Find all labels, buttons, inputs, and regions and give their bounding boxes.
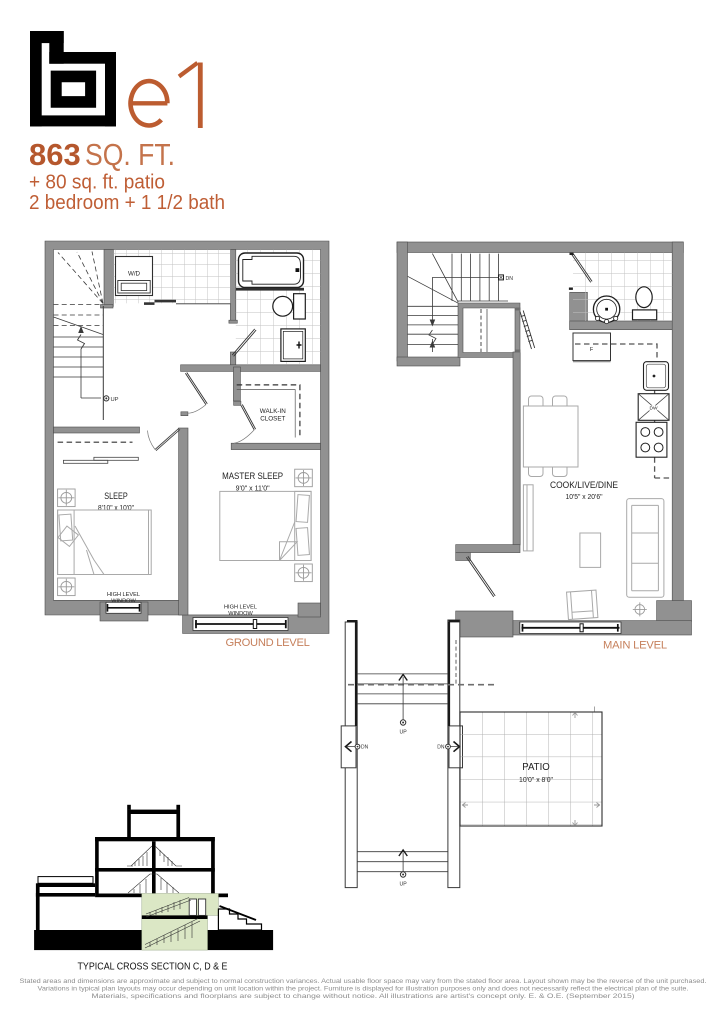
svg-text:10'0" x 8'0": 10'0" x 8'0": [519, 775, 553, 784]
svg-text:MAIN LEVEL: MAIN LEVEL: [603, 639, 667, 651]
svg-text:PATIO: PATIO: [522, 762, 550, 773]
svg-text:HIGH LEVEL: HIGH LEVEL: [107, 592, 140, 598]
svg-text:MASTER SLEEP: MASTER SLEEP: [222, 471, 283, 481]
svg-text:Materials, specifications and: Materials, specifications and floorplans…: [92, 993, 635, 1000]
svg-text:DN: DN: [361, 745, 369, 751]
svg-text:COOK/LIVE/DINE: COOK/LIVE/DINE: [550, 480, 618, 490]
svg-text:DN: DN: [437, 745, 445, 751]
svg-text:UP: UP: [399, 730, 407, 736]
svg-text:WALK-IN: WALK-IN: [260, 408, 286, 415]
svg-text:UP: UP: [111, 397, 119, 403]
svg-text:SLEEP: SLEEP: [104, 491, 128, 501]
svg-text:WINDOW: WINDOW: [228, 611, 253, 617]
svg-text:2 bedroom + 1 1/2 bath: 2 bedroom + 1 1/2 bath: [29, 192, 225, 214]
svg-text:UP: UP: [399, 882, 407, 888]
svg-text:Variations in typical plan lay: Variations in typical plan layouts may o…: [38, 986, 689, 993]
svg-text:Stated areas and dimensions ar: Stated areas and dimensions are approxim…: [20, 978, 707, 985]
svg-text:W/D: W/D: [128, 271, 141, 278]
svg-text:DN: DN: [506, 276, 514, 282]
svg-text:+ 80 sq. ft. patio: + 80 sq. ft. patio: [29, 172, 165, 194]
svg-text:CLOSET: CLOSET: [260, 415, 285, 422]
svg-text:SQ. FT.: SQ. FT.: [85, 137, 175, 172]
svg-text:8'10" x 10'0": 8'10" x 10'0": [98, 503, 134, 512]
svg-text:TYPICAL CROSS SECTION C, D & E: TYPICAL CROSS SECTION C, D & E: [78, 962, 228, 973]
svg-text:GROUND LEVEL: GROUND LEVEL: [225, 637, 309, 649]
svg-text:HIGH LEVEL: HIGH LEVEL: [224, 605, 257, 611]
svg-text:DW: DW: [650, 406, 658, 412]
svg-text:10'5" x 20'6": 10'5" x 20'6": [566, 492, 603, 501]
svg-text:WINDOW: WINDOW: [111, 599, 136, 605]
svg-text:863: 863: [29, 137, 81, 172]
